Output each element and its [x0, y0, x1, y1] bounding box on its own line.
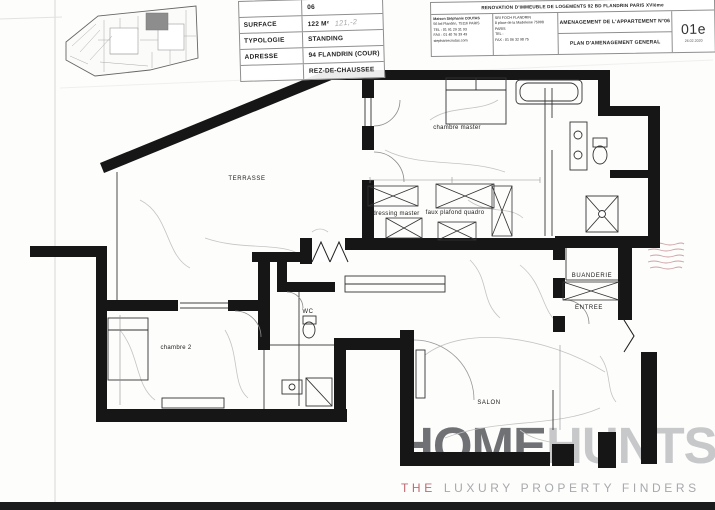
- table-row: REZ-DE-CHAUSSEE: [241, 62, 384, 81]
- client-fax: FAX : 01 06 32 98 75: [495, 37, 556, 43]
- scanned-floor-plan-sheet: HOMEHUNTS THELUXURY PROPERTY FINDERS: [0, 0, 715, 510]
- niveau-label: [241, 64, 304, 81]
- revision-number: 01e: [681, 20, 706, 36]
- drawing-title-cell: AMENAGEMENT DE L'APPARTEMENT N°06 PLAN D…: [558, 11, 673, 54]
- adresse-label: ADRESSE: [240, 48, 303, 65]
- revision-date: 26.02.2020: [685, 38, 703, 42]
- surface-label: SURFACE: [239, 16, 302, 33]
- revision-cell: 01e 26.02.2020: [672, 11, 715, 53]
- architect-info-cell: Maison Stéphanie COUTAS 56 bd Flandrin, …: [431, 14, 493, 56]
- surface-value: 122 M²121,-2: [303, 18, 358, 29]
- apartment-number-label: [239, 0, 302, 17]
- drawing-title-1: AMENAGEMENT DE L'APPARTEMENT N°06: [558, 11, 671, 34]
- title-block-table: 06 SURFACE 122 M²121,-2 TYPOLOGIE STANDI…: [238, 0, 385, 82]
- apartment-number-value: 06: [302, 4, 315, 11]
- typologie-label: TYPOLOGIE: [240, 32, 303, 49]
- drawing-title-2: PLAN D'AMENAGEMENT GENERAL: [559, 32, 672, 54]
- typologie-value: STANDING: [303, 35, 343, 43]
- sheet-header: 06 SURFACE 122 M²121,-2 TYPOLOGIE STANDI…: [0, 0, 715, 510]
- adresse-value: 94 FLANDRIN (COUR): [303, 50, 379, 59]
- surface-handwritten-note: 121,-2: [335, 17, 358, 28]
- bottom-bar: [0, 502, 715, 510]
- client-info-cell: SRI FOCH FLANDRIN 8 place de la Madelein…: [493, 13, 559, 55]
- architect-web: stephaniecoutas.com: [434, 38, 491, 44]
- drawing-header-table: RENOVATION D'IMMEUBLE DE LOGEMENTS 92 BD…: [430, 0, 715, 57]
- niveau-value: REZ-DE-CHAUSSEE: [304, 66, 375, 75]
